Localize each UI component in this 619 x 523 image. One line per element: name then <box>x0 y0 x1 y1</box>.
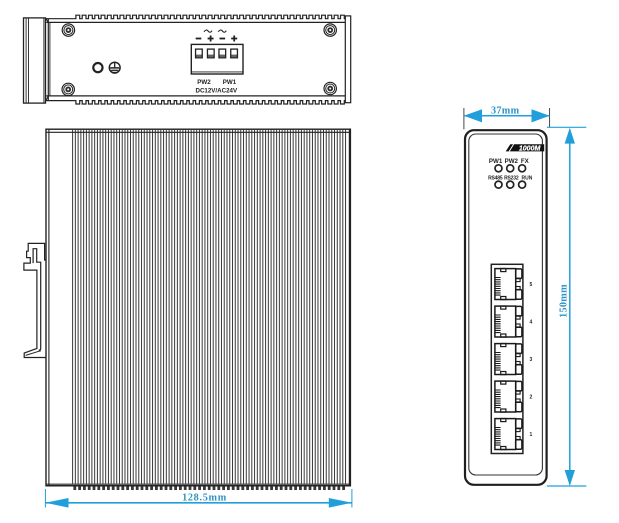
svg-text:4: 4 <box>530 320 533 326</box>
svg-text:1000M: 1000M <box>519 145 541 152</box>
svg-text:PW2: PW2 <box>505 158 519 165</box>
svg-text:1: 1 <box>530 432 533 438</box>
svg-text:2: 2 <box>530 395 533 401</box>
svg-text:5: 5 <box>530 282 533 288</box>
svg-text:128.5mm: 128.5mm <box>182 492 227 503</box>
svg-text:DC12V/AC24V: DC12V/AC24V <box>195 88 237 95</box>
svg-text:RS485: RS485 <box>488 176 503 182</box>
svg-text:PW2: PW2 <box>197 79 211 86</box>
svg-text:PW1: PW1 <box>223 79 237 86</box>
svg-text:37mm: 37mm <box>491 106 520 117</box>
svg-text:150mm: 150mm <box>559 284 570 318</box>
svg-text:PW1: PW1 <box>489 158 503 165</box>
svg-text:3: 3 <box>530 357 533 363</box>
